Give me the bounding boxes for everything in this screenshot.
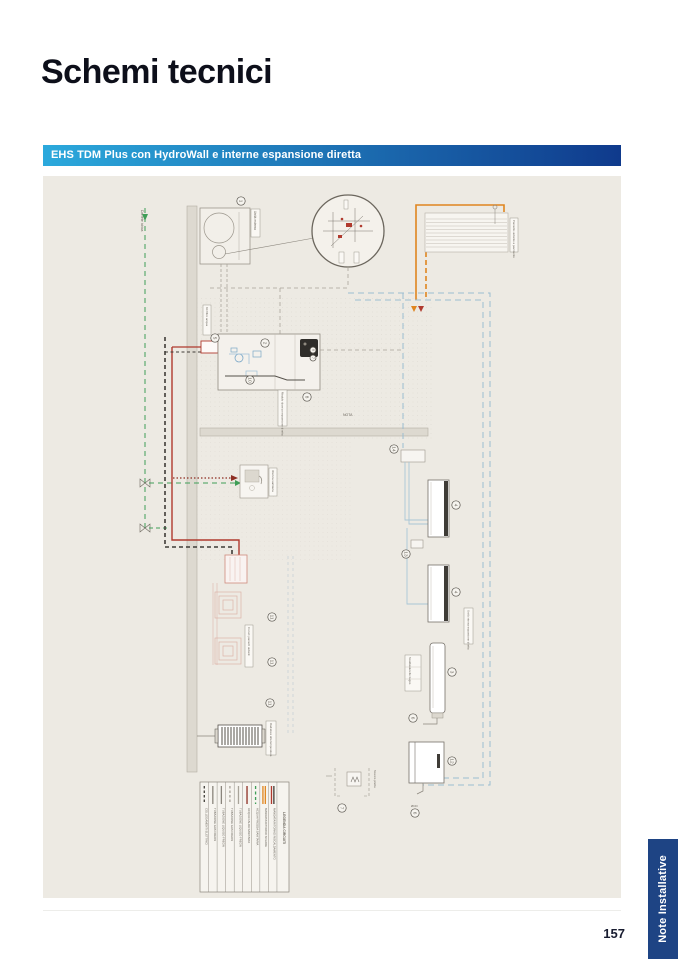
callout-6: 6 [409,714,417,722]
callout-8: 8 [303,393,311,401]
svg-text:11: 11 [270,660,275,665]
legend-row-label: ACQUA FREDDA SANITARIA [256,808,260,845]
callout-13: 13 [402,550,410,558]
technical-diagram: Unità esterna [43,176,621,898]
svg-text:4: 4 [454,591,459,594]
sink-label: Utenza sanitaria [271,470,275,492]
callout-9: 9 [310,347,316,353]
outdoor-unit: Unità esterna [200,208,260,264]
callout-11: 11 [266,699,274,707]
svg-text:9: 9 [311,349,315,351]
fan-coil-unit-1 [428,480,449,537]
svg-text:6: 6 [413,812,418,815]
side-tab-note-installative: Note Installative [648,839,678,959]
svg-text:14: 14 [392,446,397,452]
callout-5: 5 [211,334,219,342]
svg-text:2: 2 [263,342,268,345]
drain-label: Scarico piletta [373,770,377,788]
duct-note: ØCD [411,804,419,808]
svg-text:4: 4 [454,504,459,507]
side-tab-label: Note Installative [657,855,669,943]
svg-text:12: 12 [450,758,455,764]
note-text: NOTA [343,413,353,417]
legend-row-label: MANDATA/RITORNO SOLARE [264,808,268,847]
outdoor-unit-label: Unità esterna [253,211,257,230]
towel-warmer-label: Scaldasalviette bagno [408,657,412,685]
svg-text:7: 7 [340,807,345,810]
legend-row-label: TUBAZIONE LIQUIDO FREON [238,808,242,847]
drain-cluster: Scarico piletta [326,768,377,796]
svg-text:6: 6 [411,717,416,720]
legend-title: LEGENDA CIRCUITI [282,812,286,844]
callout-1: 1 [237,197,245,205]
fan-coil-unit-2: Unità interna espansione diretta [428,565,473,650]
section-banner: EHS TDM Plus con HydroWall e interne esp… [43,145,621,166]
filter-kit-label: Kit filtro acqua [205,307,209,326]
callout-4: 4 [452,588,460,596]
svg-text:8: 8 [305,396,310,399]
water-supply-label: Da rete idrica [140,210,144,231]
callout-10: 10 [246,376,254,384]
callout-7: 7 [338,804,346,812]
radiator: Radiatore alta temperatura [197,721,276,757]
svg-text:11: 11 [270,615,275,620]
callout-11: 11 [268,613,276,621]
callout-11: 11 [268,658,276,666]
svg-text:10: 10 [248,377,253,383]
callout-3: 3 [448,668,456,676]
page-title: Schemi tecnici [41,53,272,92]
radiator-label: Radiatore alta temperatura [269,723,273,757]
callout-14: 14 [390,445,398,453]
page-number: 157 [560,926,625,941]
floor-circuits: Circuiti pannelli radianti [213,555,253,667]
hydrowall-unit: ØCD [409,742,444,808]
module-label: Modulo idronico espansione diretta [281,392,285,436]
radiant-panel-circuit: Pannello radiante a pavimento [411,205,518,312]
legend-table: COLLEGAMENTI ELETTRICITUBAZIONE GAS FREO… [200,782,289,892]
filter-kit: Kit filtro acqua [203,305,211,335]
towel-warmer: Scaldasalviette bagno [405,643,445,724]
svg-text:5: 5 [213,337,218,340]
legend-row-label: TUBAZIONE GAS FREON [230,808,234,841]
footer-rule [43,910,621,911]
document-page: Schemi tecnici EHS TDM Plus con HydroWal… [0,0,678,959]
callout-12: 12 [448,757,456,765]
grid-texture [193,442,353,560]
callout-2: 2 [261,339,269,347]
callout-7: 7 [310,355,316,361]
radiant-panel-label: Pannello radiante a pavimento [512,220,516,258]
svg-text:3: 3 [450,671,455,674]
legend-row-label: ACQUA CALDA SANITARIA [247,808,251,843]
callout-6: 6 [411,809,419,817]
section-banner-label: EHS TDM Plus con HydroWall e interne esp… [51,149,361,161]
callout-4: 4 [452,501,460,509]
svg-text:11: 11 [268,701,273,706]
svg-text:7: 7 [311,357,315,359]
magnified-detail [312,195,384,267]
fan-coil-label: Unità interna espansione diretta [467,610,471,650]
diagram-panel: Unità esterna [43,176,621,898]
radiant-circuits-label: Circuiti pannelli radianti [247,627,251,656]
svg-text:13: 13 [404,551,409,557]
legend-row-label: MANDATA/RITORNO RISCALDAMENTO [273,808,277,861]
svg-text:1: 1 [239,200,244,203]
legend-row-label: TUBAZIONE GAS FREON [213,808,217,841]
legend-row-label: TUBAZIONE LIQUIDO FREON [221,808,225,847]
sanitary-fixture: Utenza sanitaria [240,465,277,498]
legend-row-label: COLLEGAMENTI ELETTRICI [204,808,208,845]
